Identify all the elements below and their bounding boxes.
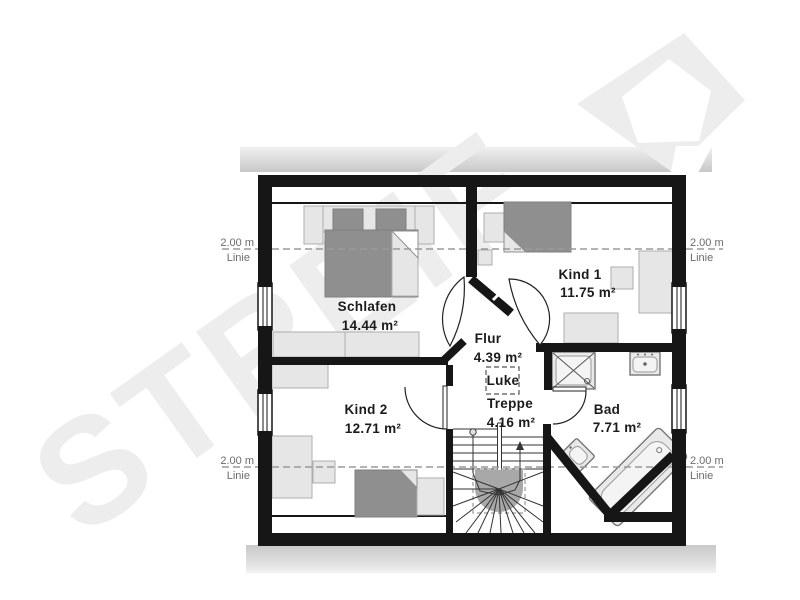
wall-kind2-upper [446, 365, 453, 386]
pillow [376, 209, 406, 230]
desk [639, 251, 673, 313]
room-area-flur: 4.39 m² [474, 350, 523, 365]
room-name-kind2: Kind 2 [344, 402, 387, 417]
room-area-schlafen: 14.44 m² [342, 318, 399, 333]
wall-right [672, 175, 686, 546]
nightstand-left [304, 206, 323, 244]
height-marker-left-upper-sub: Linie [227, 252, 250, 264]
window-left-upper [258, 283, 272, 330]
wall-schlafen-kind2 [272, 357, 448, 365]
room-area-kind2: 12.71 m² [345, 421, 402, 436]
room-area-bad: 7.71 m² [593, 420, 642, 435]
room-area-kind1: 11.75 m² [560, 285, 616, 300]
wall-left [258, 175, 272, 546]
height-marker-right-lower: 2.00 m [690, 455, 724, 467]
height-marker-left-upper: 2.00 m [220, 237, 254, 249]
room-name-flur: Flur [475, 331, 502, 346]
pillow [333, 209, 363, 230]
attic-hatch-label: Luke [487, 373, 520, 388]
chair [313, 461, 335, 483]
height-marker-left-lower: 2.00 m [220, 455, 254, 467]
wardrobe [272, 362, 328, 388]
wall-kind1-bad [536, 343, 672, 352]
pillow [484, 213, 504, 242]
roof-eave-bar-bottom [246, 545, 716, 573]
wall-schlafen-kind1 [466, 187, 477, 277]
height-marker-right-upper-sub: Linie [690, 252, 713, 264]
sink [630, 352, 660, 375]
pillow [417, 478, 444, 515]
height-marker-right-lower-sub: Linie [690, 470, 713, 482]
room-name-bad: Bad [594, 402, 620, 417]
room-name-schlafen: Schlafen [338, 299, 397, 314]
wall-top [258, 175, 686, 187]
nightstand [478, 250, 492, 265]
wall-bottom [258, 533, 686, 546]
height-marker-right-upper: 2.00 m [690, 237, 724, 249]
height-marker-left-lower-sub: Linie [227, 470, 250, 482]
wall-bad-bottom [604, 512, 672, 522]
window-left-lower [258, 390, 272, 435]
room-name-kind1: Kind 1 [558, 267, 601, 282]
window-right-upper [672, 283, 686, 333]
wall-flur-bad [544, 352, 552, 390]
wall-kind2-stair [446, 429, 453, 533]
stairs-label: Treppe [487, 396, 533, 411]
floor-plan: STREIF [0, 0, 800, 600]
window-right-lower [672, 385, 686, 433]
stairs-area: 4.16 m² [487, 415, 536, 430]
shower [552, 352, 595, 389]
dresser [564, 313, 618, 343]
wardrobe [273, 332, 419, 357]
